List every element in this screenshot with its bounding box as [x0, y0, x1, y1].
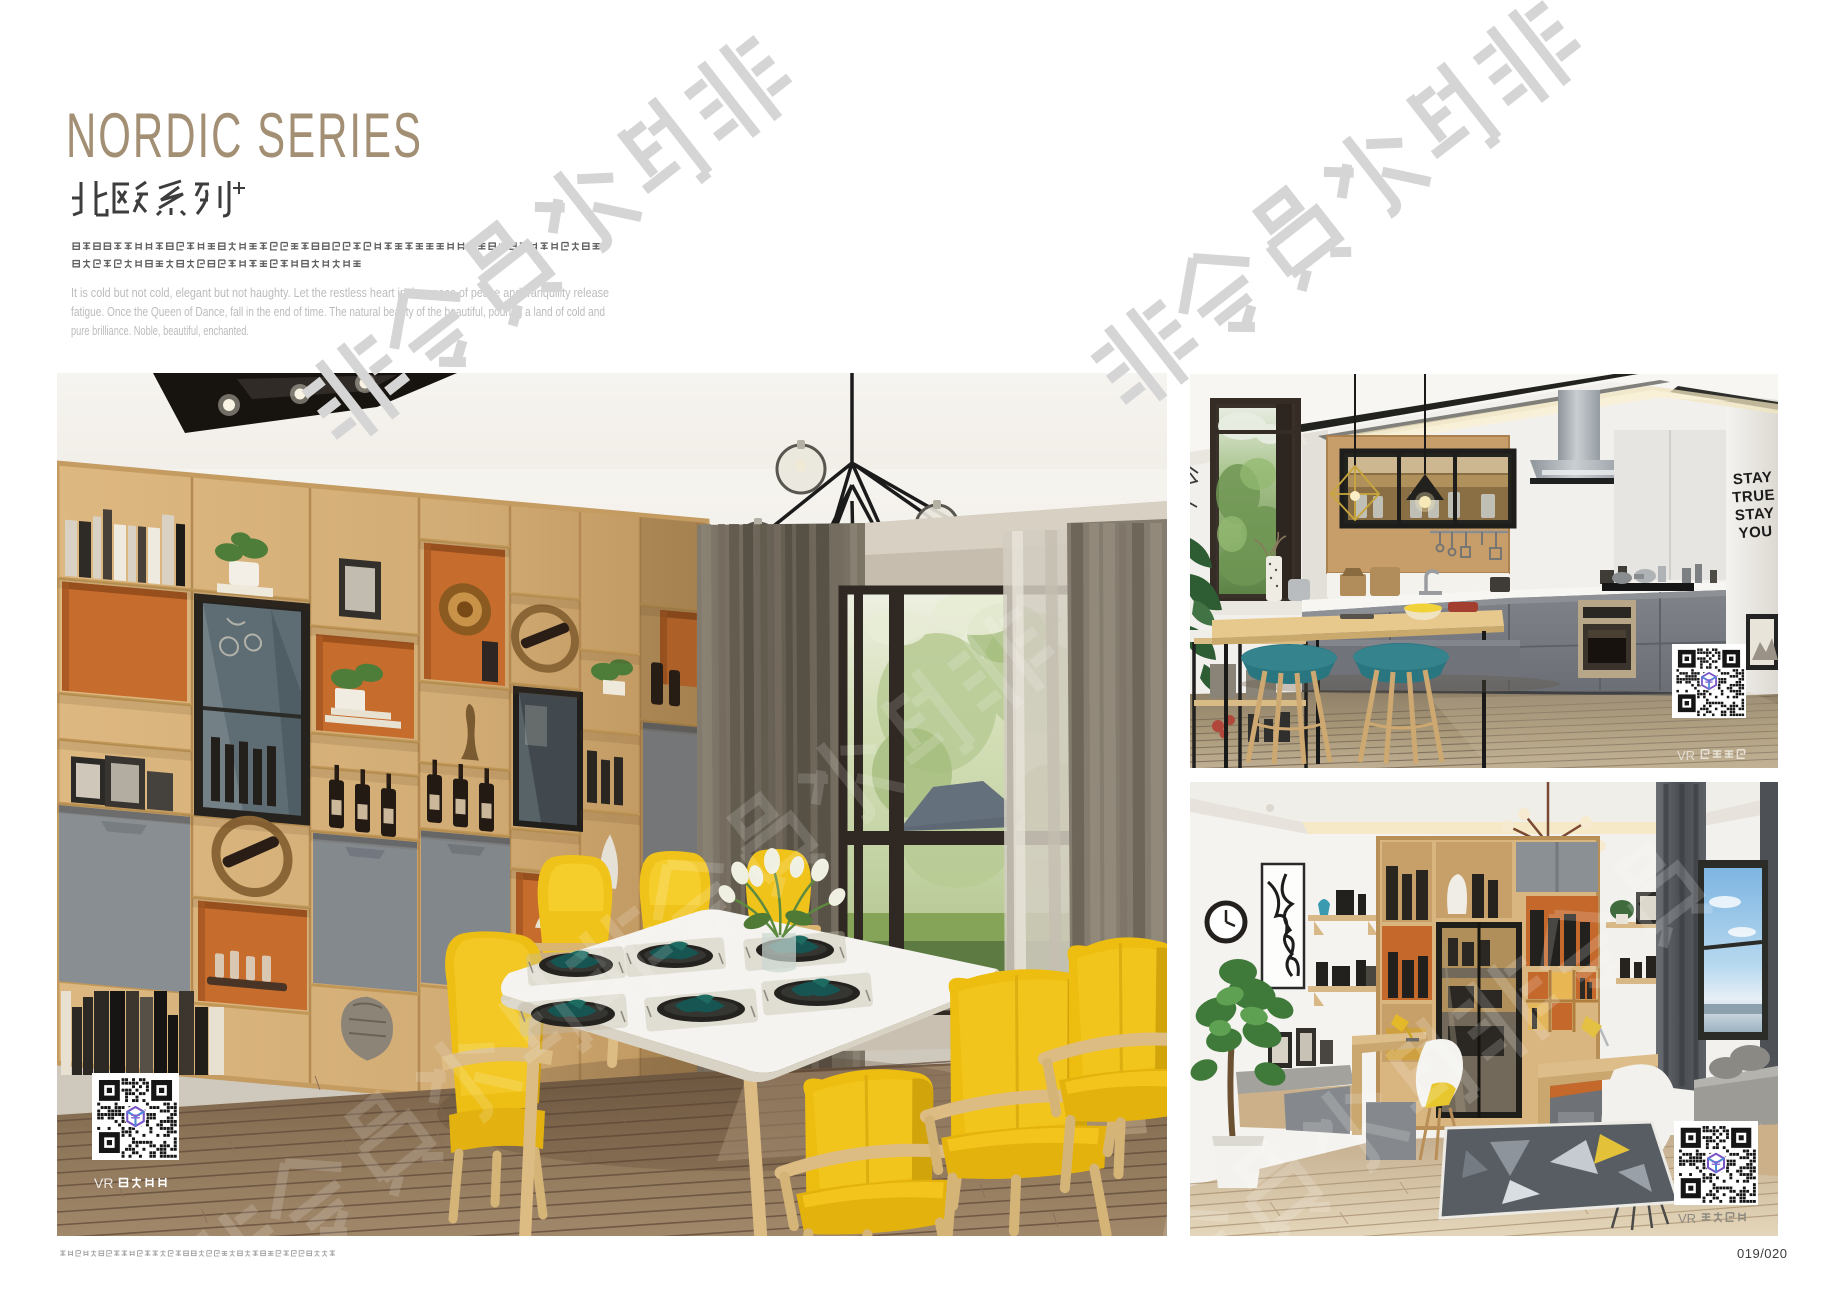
- svg-text:pure brilliance. Noble, beauti: pure brilliance. Noble, beautiful, encha…: [71, 324, 249, 338]
- svg-text:TRUE: TRUE: [1732, 487, 1776, 507]
- svg-text:VR: VR: [1677, 748, 1695, 763]
- svg-text:STAY: STAY: [1734, 505, 1775, 525]
- svg-text:VR: VR: [94, 1175, 113, 1191]
- svg-text:STAY: STAY: [1732, 469, 1773, 489]
- svg-text:VR: VR: [1678, 1211, 1696, 1226]
- svg-text:fatigue. Once the Queen of Dan: fatigue. Once the Queen of Dance, fall i…: [71, 305, 605, 319]
- svg-text:YOU: YOU: [1738, 523, 1773, 542]
